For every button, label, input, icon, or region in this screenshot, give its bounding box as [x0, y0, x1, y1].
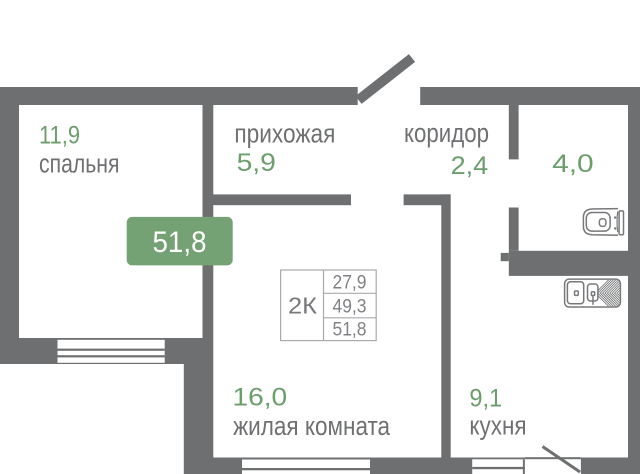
- svg-text:5,9: 5,9: [237, 149, 276, 177]
- svg-text:кухня: кухня: [469, 411, 526, 441]
- svg-text:9,1: 9,1: [469, 385, 502, 413]
- svg-text:27,9: 27,9: [333, 273, 367, 294]
- svg-text:11,9: 11,9: [39, 121, 80, 149]
- svg-text:коридор: коридор: [404, 118, 489, 148]
- svg-text:прихожая: прихожая: [234, 118, 335, 148]
- svg-text:51,8: 51,8: [153, 226, 207, 259]
- svg-text:2,4: 2,4: [451, 152, 489, 180]
- svg-text:49,3: 49,3: [333, 296, 367, 317]
- svg-text:16,0: 16,0: [233, 383, 288, 411]
- svg-text:4,0: 4,0: [552, 150, 594, 178]
- svg-text:51,8: 51,8: [333, 320, 367, 341]
- svg-text:жилая комната: жилая комната: [233, 411, 390, 441]
- svg-text:2К: 2К: [288, 293, 317, 319]
- svg-text:спальня: спальня: [39, 148, 120, 178]
